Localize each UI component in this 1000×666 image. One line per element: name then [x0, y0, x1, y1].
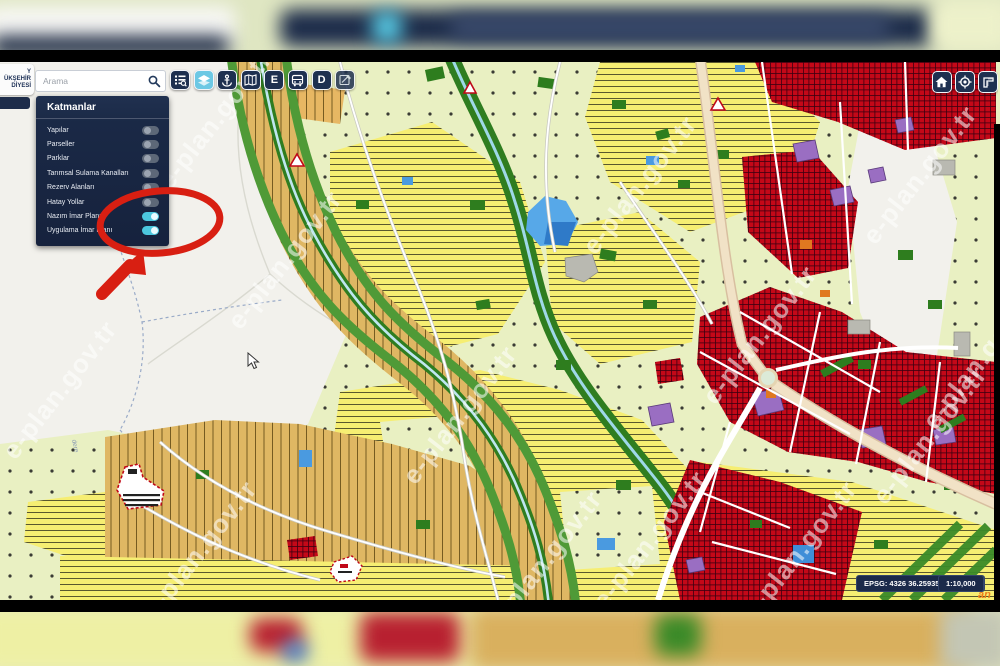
- map-toolbar: E D: [170, 70, 355, 90]
- blurred-top-strip: [0, 0, 1000, 50]
- blur-blob: [360, 612, 460, 662]
- list-magnifier-icon: [174, 74, 187, 87]
- map-edit-icon: [339, 74, 352, 86]
- nav-right-buttons: [932, 71, 998, 95]
- layers-list: YapılarParsellerParklarTarımsal Sulama K…: [36, 119, 169, 238]
- partial-logo-text: an: [978, 589, 991, 600]
- transit-button[interactable]: [288, 70, 308, 90]
- map-icon: [244, 74, 257, 86]
- layer-toggle-on[interactable]: [142, 226, 159, 235]
- logo-line: Y: [27, 69, 31, 76]
- search-box: [35, 70, 166, 92]
- toggle-knob: [144, 155, 151, 162]
- layers-icon: [197, 74, 211, 87]
- layer-toggle-off[interactable]: [142, 169, 159, 178]
- toggle-knob: [151, 213, 158, 220]
- ruler-icon: [982, 76, 995, 89]
- home-button[interactable]: [932, 71, 952, 93]
- layer-toggle-off[interactable]: [142, 198, 159, 207]
- letterbox-bar: [0, 600, 1000, 612]
- locate-button[interactable]: [955, 71, 975, 93]
- map-application-screen: dere: [0, 62, 1000, 600]
- layer-row: Tarımsal Sulama Kanalları: [36, 166, 169, 180]
- toggle-knob: [144, 170, 151, 177]
- draw-edit-button[interactable]: [335, 70, 355, 90]
- d-button-label: D: [318, 74, 326, 86]
- blur-blob: [0, 36, 230, 50]
- blur-blob: [282, 640, 308, 662]
- layer-row: Yapılar: [36, 123, 169, 137]
- layer-toggle-on[interactable]: [142, 212, 159, 221]
- toggle-knob: [144, 199, 151, 206]
- layer-toggle-off[interactable]: [142, 140, 159, 149]
- layer-row: Uygulama İmar Planı: [36, 224, 169, 238]
- layer-toggle-off[interactable]: [142, 126, 159, 135]
- blurred-bottom-strip: [0, 612, 1000, 666]
- layers-panel: Katmanlar YapılarParsellerParklarTarımsa…: [36, 96, 169, 246]
- measure-button[interactable]: [978, 71, 998, 93]
- layer-row: Nazım İmar Planı: [36, 209, 169, 223]
- blur-blob: [930, 0, 1000, 50]
- toggle-knob: [151, 227, 158, 234]
- layer-label: Hatay Yollar: [47, 199, 84, 206]
- blur-blob: [470, 612, 970, 666]
- municipality-logo: Y ÜKŞEHİR DİYESİ: [0, 64, 34, 95]
- video-frame: dere: [0, 0, 1000, 666]
- layer-label: Parseller: [47, 141, 75, 148]
- search-icon[interactable]: [146, 73, 162, 89]
- scale-badge: 1:10,000: [938, 575, 984, 592]
- layer-toggle-off[interactable]: [142, 154, 159, 163]
- logo-sub-bar: [0, 97, 30, 109]
- layer-row: Hatay Yollar: [36, 195, 169, 209]
- letterbox-bar: [0, 50, 1000, 62]
- toggle-knob: [144, 141, 151, 148]
- blur-blob: [450, 16, 890, 38]
- toggle-knob: [144, 184, 151, 191]
- layer-label: Rezerv Alanları: [47, 184, 94, 191]
- layer-row: Rezerv Alanları: [36, 181, 169, 195]
- blur-blob: [372, 11, 402, 43]
- logo-line: ÜKŞEHİR: [4, 76, 31, 83]
- layer-label: Nazım İmar Planı: [47, 213, 101, 220]
- layers-button[interactable]: [194, 70, 214, 90]
- target-icon: [958, 75, 972, 89]
- letterbox-right: [994, 124, 1000, 600]
- layer-toggle-off[interactable]: [142, 183, 159, 192]
- toggle-knob: [144, 127, 151, 134]
- e-button[interactable]: E: [264, 70, 284, 90]
- home-icon: [935, 76, 948, 88]
- layer-row: Parseller: [36, 137, 169, 151]
- query-legend-button[interactable]: [170, 70, 190, 90]
- layers-panel-title: Katmanlar: [36, 96, 169, 119]
- layer-label: Parklar: [47, 155, 69, 162]
- layer-label: Uygulama İmar Planı: [47, 227, 112, 234]
- layer-label: Tarımsal Sulama Kanalları: [47, 170, 129, 177]
- location-anchor-button[interactable]: [217, 70, 237, 90]
- logo-line: DİYESİ: [11, 83, 31, 90]
- bus-icon: [291, 74, 304, 87]
- blur-blob: [655, 614, 701, 656]
- layer-label: Yapılar: [47, 127, 69, 134]
- e-button-label: E: [271, 74, 278, 86]
- basemap-button[interactable]: [241, 70, 261, 90]
- layer-row: Parklar: [36, 152, 169, 166]
- blur-blob: [940, 612, 1000, 666]
- d-button[interactable]: D: [312, 70, 332, 90]
- search-input[interactable]: [36, 76, 146, 86]
- anchor-icon: [221, 74, 233, 87]
